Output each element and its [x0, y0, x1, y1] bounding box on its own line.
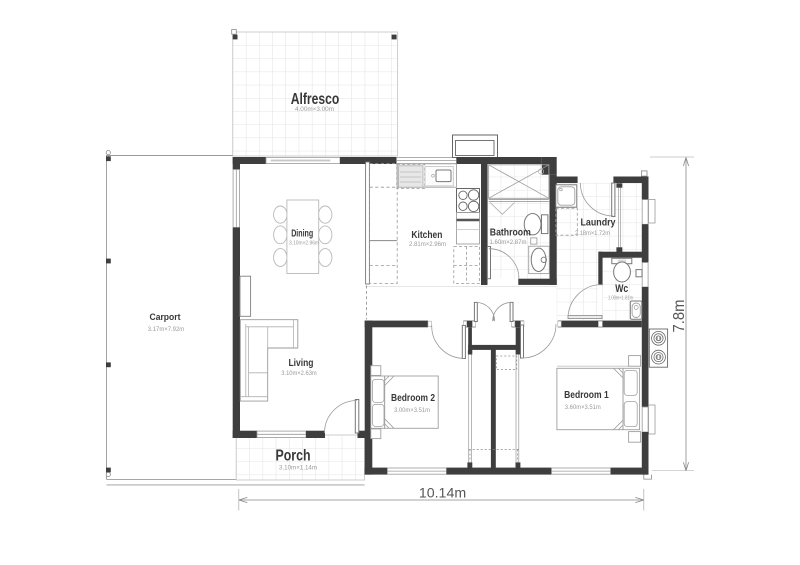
svg-text:3.10m×2.63m: 3.10m×2.63m: [281, 370, 317, 377]
svg-text:Kitchen: Kitchen: [411, 230, 442, 241]
svg-text:Carport: Carport: [150, 312, 181, 322]
svg-text:3.10m×2.96m: 3.10m×2.96m: [289, 240, 319, 246]
svg-text:Living: Living: [289, 358, 314, 369]
svg-text:2.81m×2.96m: 2.81m×2.96m: [409, 241, 446, 248]
svg-text:1.00m×1.81m: 1.00m×1.81m: [608, 295, 633, 301]
svg-text:7.8m: 7.8m: [671, 300, 688, 333]
svg-text:Dining: Dining: [291, 228, 313, 239]
svg-text:Laundry: Laundry: [581, 217, 616, 228]
svg-text:3.60m×3.51m: 3.60m×3.51m: [565, 404, 601, 411]
svg-text:Bedroom 1: Bedroom 1: [564, 390, 609, 401]
svg-text:3.10m×1.14m: 3.10m×1.14m: [279, 465, 317, 472]
svg-text:3.17m×7.92m: 3.17m×7.92m: [148, 326, 185, 333]
svg-text:Porch: Porch: [276, 448, 311, 465]
svg-text:Bathroom: Bathroom: [490, 227, 531, 238]
svg-text:2.18m×1.72m: 2.18m×1.72m: [575, 230, 610, 237]
svg-text:3.00m×3.51m: 3.00m×3.51m: [394, 407, 430, 414]
svg-text:10.14m: 10.14m: [419, 485, 466, 501]
svg-text:Wc: Wc: [615, 283, 628, 295]
svg-text:Bedroom 2: Bedroom 2: [391, 393, 435, 404]
svg-text:1.60m×2.87m: 1.60m×2.87m: [490, 239, 527, 246]
svg-text:4.00m×3.00m: 4.00m×3.00m: [295, 106, 334, 113]
